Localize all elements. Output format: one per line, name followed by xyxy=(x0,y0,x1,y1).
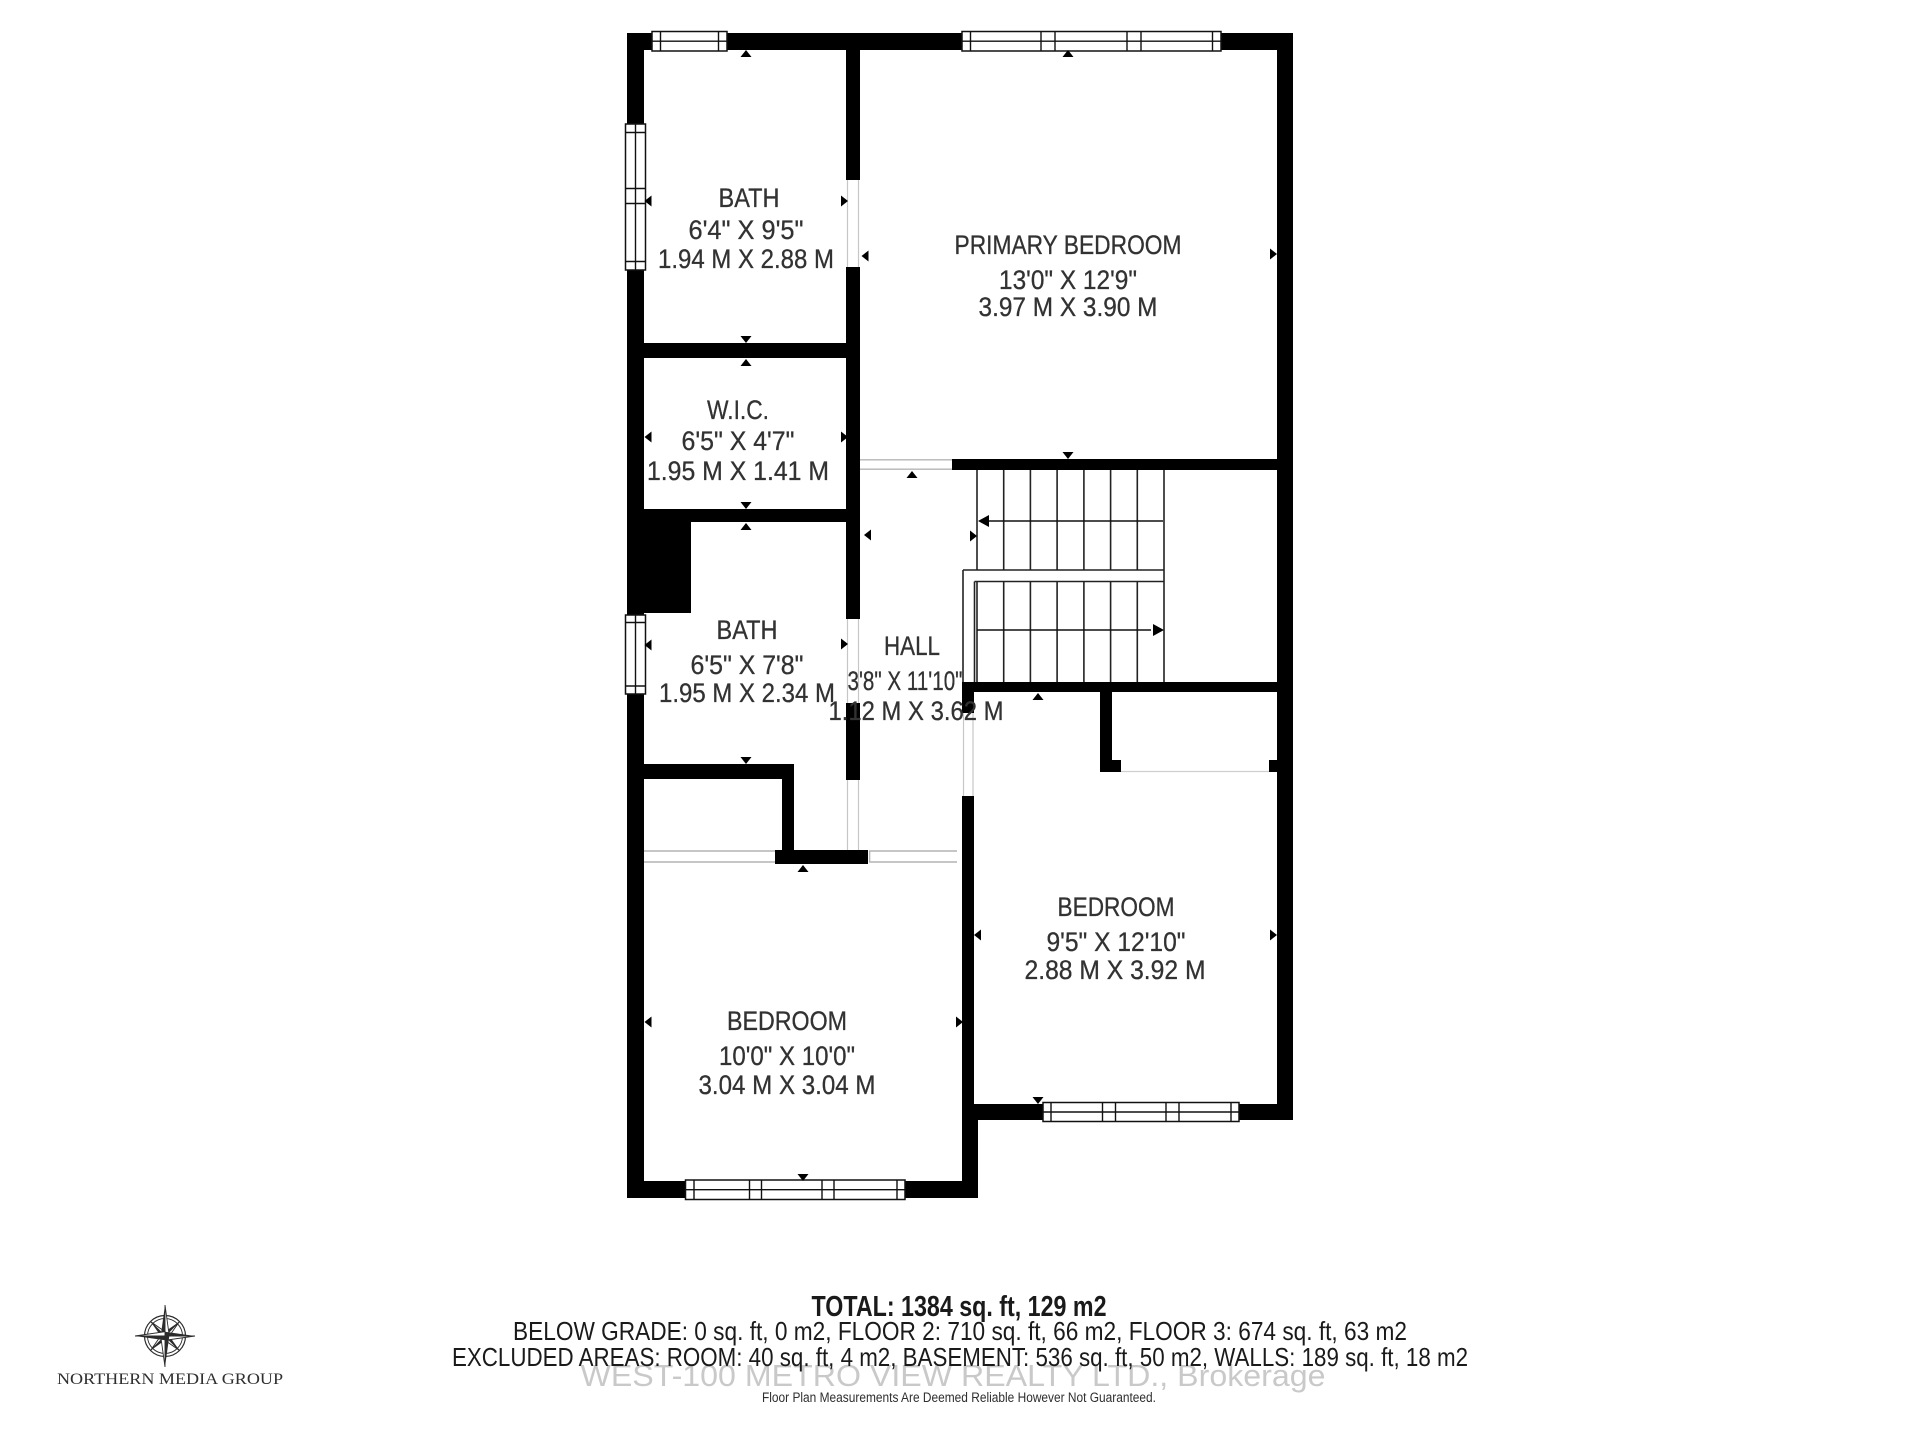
svg-text:9'5" X 12'10": 9'5" X 12'10" xyxy=(1047,927,1186,957)
svg-text:1.12 M X 3.62 M: 1.12 M X 3.62 M xyxy=(829,696,1004,726)
svg-text:NORTHERN MEDIA GROUP: NORTHERN MEDIA GROUP xyxy=(57,1371,283,1388)
svg-text:3.97 M X 3.90 M: 3.97 M X 3.90 M xyxy=(979,292,1158,322)
svg-text:1.94 M X 2.88 M: 1.94 M X 2.88 M xyxy=(658,244,834,274)
svg-text:EXCLUDED AREAS: ROOM: 40 sq. f: EXCLUDED AREAS: ROOM: 40 sq. ft, 4 m2, B… xyxy=(452,1342,1468,1372)
svg-text:PRIMARY BEDROOM: PRIMARY BEDROOM xyxy=(955,230,1182,260)
svg-text:BATH: BATH xyxy=(717,615,778,645)
svg-text:2.88 M X 3.92 M: 2.88 M X 3.92 M xyxy=(1025,955,1206,985)
svg-text:W.I.C.: W.I.C. xyxy=(707,395,769,425)
svg-text:Floor Plan Measurements Are De: Floor Plan Measurements Are Deemed Relia… xyxy=(762,1390,1156,1405)
svg-text:1.95 M X 2.34 M: 1.95 M X 2.34 M xyxy=(659,678,835,708)
svg-text:3'8" X 11'10": 3'8" X 11'10" xyxy=(848,666,963,696)
svg-text:10'0" X 10'0": 10'0" X 10'0" xyxy=(719,1041,855,1071)
svg-text:3.04 M X 3.04 M: 3.04 M X 3.04 M xyxy=(699,1070,876,1100)
svg-text:BATH: BATH xyxy=(719,183,780,213)
svg-text:HALL: HALL xyxy=(884,631,940,661)
svg-text:13'0" X 12'9": 13'0" X 12'9" xyxy=(999,265,1137,295)
svg-text:6'5" X 7'8": 6'5" X 7'8" xyxy=(691,650,804,680)
svg-text:6'4" X 9'5": 6'4" X 9'5" xyxy=(689,215,804,245)
svg-text:BEDROOM: BEDROOM xyxy=(1058,892,1175,922)
svg-text:6'5" X 4'7": 6'5" X 4'7" xyxy=(682,426,795,456)
svg-text:BEDROOM: BEDROOM xyxy=(727,1006,847,1036)
svg-text:1.95 M X 1.41 M: 1.95 M X 1.41 M xyxy=(647,456,829,486)
